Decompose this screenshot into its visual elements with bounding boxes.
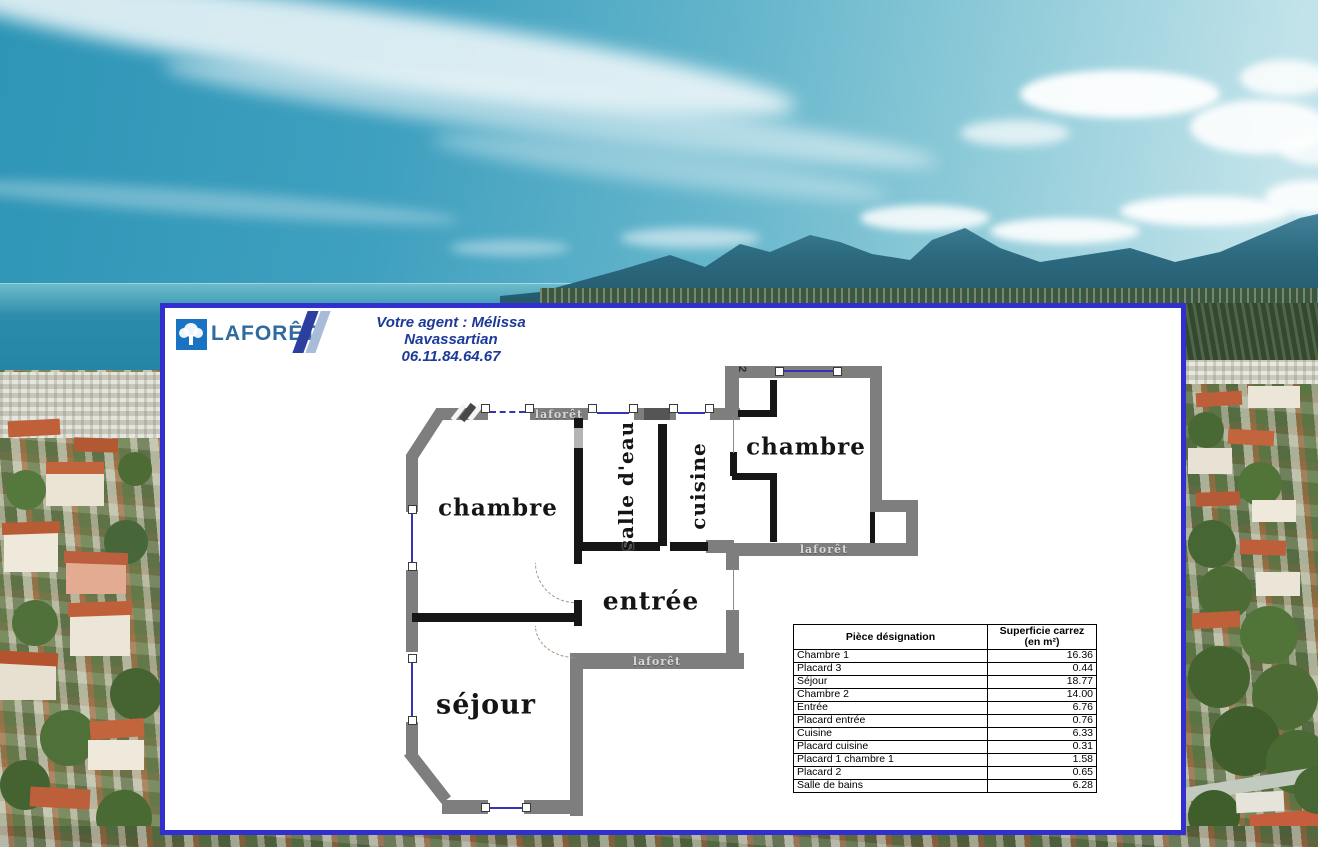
- floor-plan: laforêt laforêt laforêt: [0, 0, 1318, 847]
- superficie-value: 18.77: [988, 676, 1097, 689]
- superficie-value: 16.36: [988, 650, 1097, 663]
- table-row: Placard 30.44: [794, 663, 1097, 676]
- table-row: Placard 1 chambre 11.58: [794, 754, 1097, 767]
- closet-wall: [738, 410, 777, 417]
- superficie-value: 14.00: [988, 689, 1097, 702]
- table-row: Placard entrée0.76: [794, 715, 1097, 728]
- room-label-entree: entrée: [603, 587, 700, 616]
- wall-segment: [406, 570, 418, 652]
- piece-name: Entrée: [794, 702, 988, 715]
- piece-name: Chambre 1: [794, 650, 988, 663]
- table-row: Chambre 214.00: [794, 689, 1097, 702]
- selection-handle[interactable]: [525, 404, 534, 413]
- table-row: Chambre 116.36: [794, 650, 1097, 663]
- piece-name: Placard cuisine: [794, 741, 988, 754]
- window-line: [784, 370, 833, 372]
- header-superficie-carrez: Superficie carrez (en m²): [988, 625, 1097, 650]
- wall-opening: [574, 428, 583, 448]
- table-row: Placard 20.65: [794, 767, 1097, 780]
- room-label-cuisine: cuisine: [686, 442, 710, 529]
- table-header-row: Pièce désignation Superficie carrez (en …: [794, 625, 1097, 650]
- table-row: Salle de bains6.28: [794, 780, 1097, 793]
- table-row: Séjour18.77: [794, 676, 1097, 689]
- selection-handle[interactable]: [775, 367, 784, 376]
- selection-handle[interactable]: [408, 562, 417, 571]
- superficie-value: 1.58: [988, 754, 1097, 767]
- wall-chamfer: [404, 748, 451, 803]
- window-line: [490, 807, 522, 809]
- wall-segment: laforêt: [570, 653, 744, 669]
- selection-handle[interactable]: [705, 404, 714, 413]
- wall-interior: [670, 542, 708, 551]
- wall-chamfer: [406, 408, 447, 462]
- selection-handle[interactable]: [408, 654, 417, 663]
- wall-thin: [733, 417, 734, 453]
- wall-segment: [706, 540, 734, 553]
- closet-wall: [770, 473, 777, 542]
- room-label-salle-d-eau: salle d'eau: [614, 421, 638, 551]
- table-row: Cuisine6.33: [794, 728, 1097, 741]
- wall-interior: [412, 613, 576, 622]
- superficie-value: 0.31: [988, 741, 1097, 754]
- laforet-watermark: laforêt: [633, 655, 681, 668]
- superficie-value: 6.76: [988, 702, 1097, 715]
- piece-name: Cuisine: [794, 728, 988, 741]
- table-row: Placard cuisine0.31: [794, 741, 1097, 754]
- room-label-chambre-2: chambre: [746, 434, 866, 461]
- wall-segment: [725, 366, 882, 378]
- wall-interior: [658, 424, 667, 546]
- piece-name: Placard 3: [794, 663, 988, 676]
- wall-thin: [733, 568, 734, 612]
- window-line: [678, 412, 705, 414]
- screenshot-stage: LAFORÊT Votre agent : Mélissa Navassarti…: [0, 0, 1318, 847]
- window-line: [411, 514, 413, 562]
- room-label-chambre-1: chambre: [438, 495, 558, 522]
- selection-handle[interactable]: [833, 367, 842, 376]
- superficie-value: 0.76: [988, 715, 1097, 728]
- superficie-value: 0.44: [988, 663, 1097, 676]
- wall-interior: [574, 548, 582, 564]
- selection-handle[interactable]: [408, 505, 417, 514]
- wall-segment: [644, 408, 670, 420]
- closet-number-label: 2: [736, 366, 748, 372]
- door-arc: [535, 563, 575, 603]
- selection-handle[interactable]: [408, 716, 417, 725]
- window-line: [490, 411, 525, 413]
- window-line: [411, 663, 413, 716]
- selection-handle[interactable]: [481, 803, 490, 812]
- selection-handle[interactable]: [629, 404, 638, 413]
- piece-name: Placard 2: [794, 767, 988, 780]
- door-arc: [535, 626, 575, 658]
- piece-name: Séjour: [794, 676, 988, 689]
- laforet-watermark: laforêt: [800, 543, 848, 556]
- header-piece-designation: Pièce désignation: [794, 625, 988, 650]
- wall-segment: [570, 665, 583, 816]
- selection-handle[interactable]: [522, 803, 531, 812]
- superficie-value: 6.28: [988, 780, 1097, 793]
- superficie-value: 6.33: [988, 728, 1097, 741]
- wall-segment: [870, 366, 882, 512]
- wall-interior: [870, 512, 875, 543]
- selection-handle[interactable]: [588, 404, 597, 413]
- table-row: Entrée6.76: [794, 702, 1097, 715]
- surface-area-table: Pièce désignation Superficie carrez (en …: [793, 624, 1097, 793]
- selection-handle[interactable]: [669, 404, 678, 413]
- superficie-value: 0.65: [988, 767, 1097, 780]
- piece-name: Chambre 2: [794, 689, 988, 702]
- wall-segment: laforêt: [730, 543, 918, 556]
- piece-name: Placard entrée: [794, 715, 988, 728]
- room-label-sejour: séjour: [436, 690, 536, 721]
- piece-name: Placard 1 chambre 1: [794, 754, 988, 767]
- wall-segment: [406, 455, 418, 512]
- wall-segment: [726, 610, 739, 658]
- table-body: Chambre 116.36Placard 30.44Séjour18.77Ch…: [794, 650, 1097, 793]
- selection-handle[interactable]: [481, 404, 490, 413]
- window-line: [597, 412, 629, 414]
- piece-name: Salle de bains: [794, 780, 988, 793]
